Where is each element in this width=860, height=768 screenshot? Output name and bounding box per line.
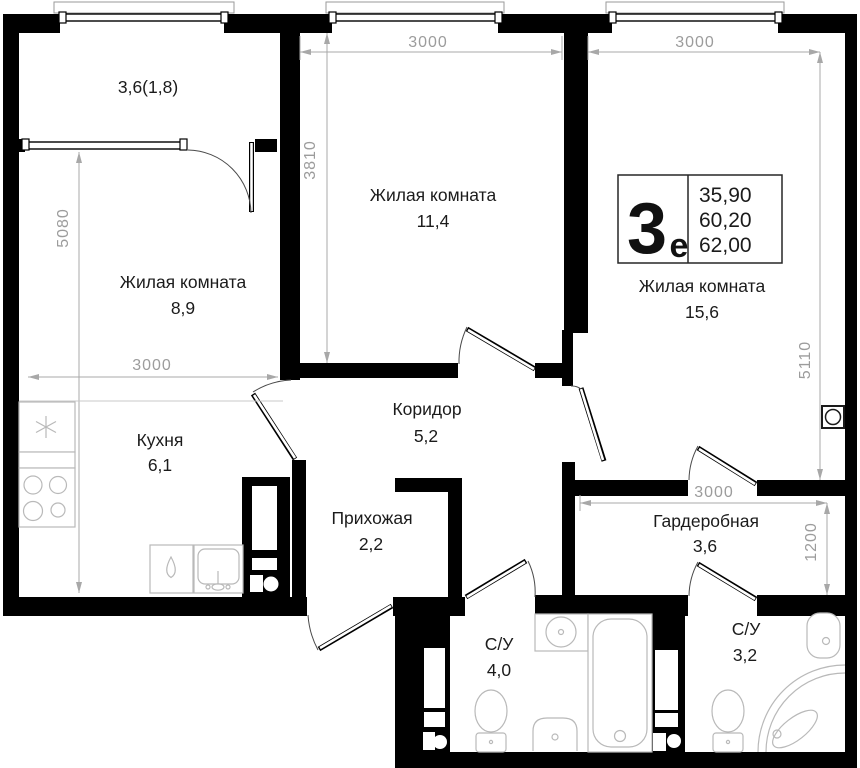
window-icon-balcony: [54, 2, 234, 23]
door-wardrobe: [689, 446, 756, 484]
apartment-type-number: 3: [627, 189, 667, 269]
window-icon-room-top: [326, 2, 504, 23]
apartment-type-letter: е: [670, 227, 689, 265]
bath-shaft: [648, 612, 685, 752]
corridor-name-label: Коридор: [392, 399, 461, 419]
area-total-value: 62,00: [699, 234, 752, 257]
wardrobe-area-label: 3,6: [693, 536, 717, 556]
room-right-area-label: 15,6: [685, 302, 719, 322]
window-icon-balcony-partition: [22, 139, 187, 150]
vent-box-icon: [822, 406, 844, 428]
hallway-area-label: 2,2: [359, 534, 383, 554]
kitchen-name-label: Кухня: [137, 430, 184, 450]
apartment-info-box: 3 е 35,90 60,20 62,00: [618, 175, 782, 269]
dim-left-zone-w: 3000: [132, 357, 172, 374]
wardrobe-name-label: Гардеробная: [653, 511, 759, 531]
washbasin-icon-main: [533, 718, 577, 751]
kitchen-counter-icon: [150, 545, 193, 593]
door-bath-second: [689, 562, 756, 599]
kitchen-shaft: [242, 477, 290, 597]
bathtub-icon: [588, 614, 652, 752]
door-room-right: [571, 386, 604, 461]
bath-second-name-label: С/У: [732, 619, 762, 639]
toilet-icon-main: [475, 690, 507, 752]
dim-room-right-h: 5110: [797, 341, 814, 379]
room-top-name-label: Жилая комната: [370, 185, 497, 205]
bath-main-area-label: 4,0: [487, 660, 512, 680]
hallway-name-label: Прихожая: [331, 508, 412, 528]
room-right-name-label: Жилая комната: [639, 276, 766, 296]
door-entrance: [308, 606, 392, 650]
area-apartment-value: 60,20: [699, 209, 752, 232]
stove-icon: [19, 468, 75, 527]
washing-machine-icon: [535, 614, 588, 651]
walls: [3, 14, 857, 768]
window-icon-room-right: [606, 2, 784, 23]
dim-wardrobe-h: 1200: [803, 522, 820, 562]
door-room-top: [459, 327, 535, 369]
door-balcony: [188, 142, 252, 213]
entry-shaft: [420, 612, 450, 752]
area-living-value: 35,90: [699, 184, 752, 207]
washbasin-icon-second: [807, 613, 840, 658]
dim-room-top-w: 3000: [408, 34, 448, 51]
dim-wardrobe-w: 3000: [694, 484, 734, 501]
room-left-area-label: 8,9: [171, 298, 195, 318]
floor-plan-drawing: 3000 3000 3810 5080 3000 5110 3000: [0, 0, 860, 768]
door-kitchen: [253, 380, 295, 459]
door-bath-main: [466, 561, 535, 597]
balcony-area-label: 3,6(1,8): [118, 77, 178, 97]
corridor-area-label: 5,2: [414, 426, 438, 446]
toilet-icon-second: [712, 690, 744, 752]
dim-room-right-w: 3000: [675, 34, 715, 51]
bath-main-name-label: С/У: [485, 634, 515, 654]
kitchen-area-label: 6,1: [148, 455, 172, 475]
dim-room-top-h: 3810: [302, 140, 319, 180]
bath-second-area-label: 3,2: [733, 645, 757, 665]
room-top-area-label: 11,4: [417, 211, 450, 231]
shower-icon: [758, 665, 845, 754]
room-left-name-label: Жилая комната: [120, 272, 247, 292]
kitchen-sink-icon: [194, 545, 243, 593]
dim-left-zone-h: 5080: [55, 208, 72, 248]
floor-plan: 3000 3000 3810 5080 3000 5110 3000: [0, 0, 860, 768]
